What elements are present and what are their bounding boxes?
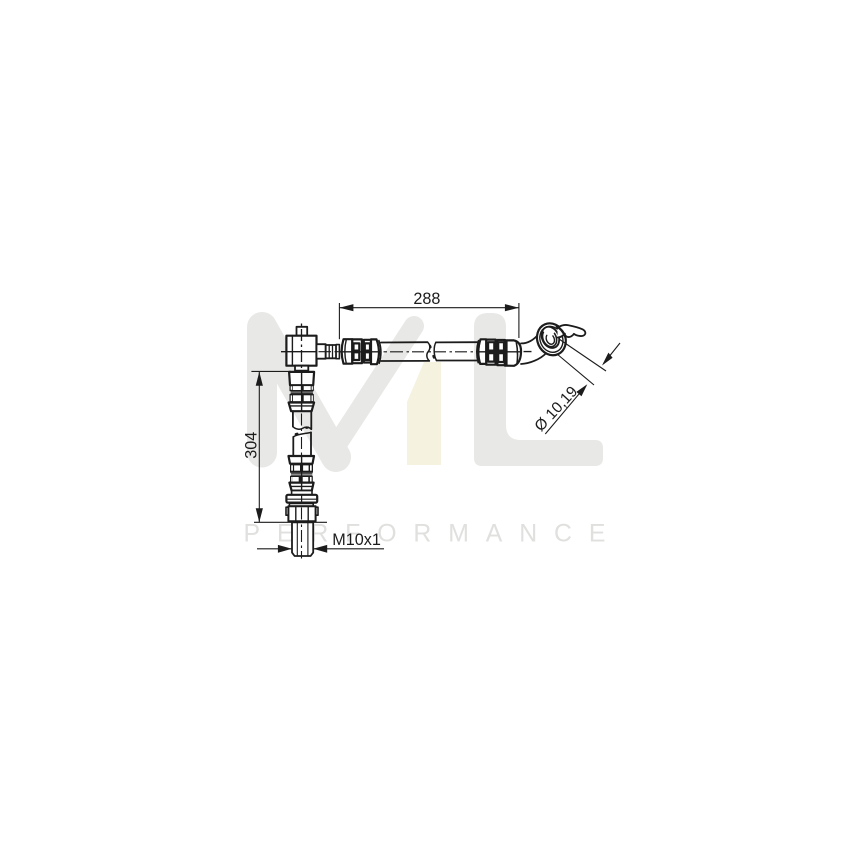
svg-text:Ø 10,19: Ø 10,19 (531, 383, 581, 435)
svg-text:M10x1: M10x1 (332, 531, 381, 549)
svg-text:288: 288 (413, 290, 440, 308)
svg-text:304: 304 (242, 432, 260, 459)
